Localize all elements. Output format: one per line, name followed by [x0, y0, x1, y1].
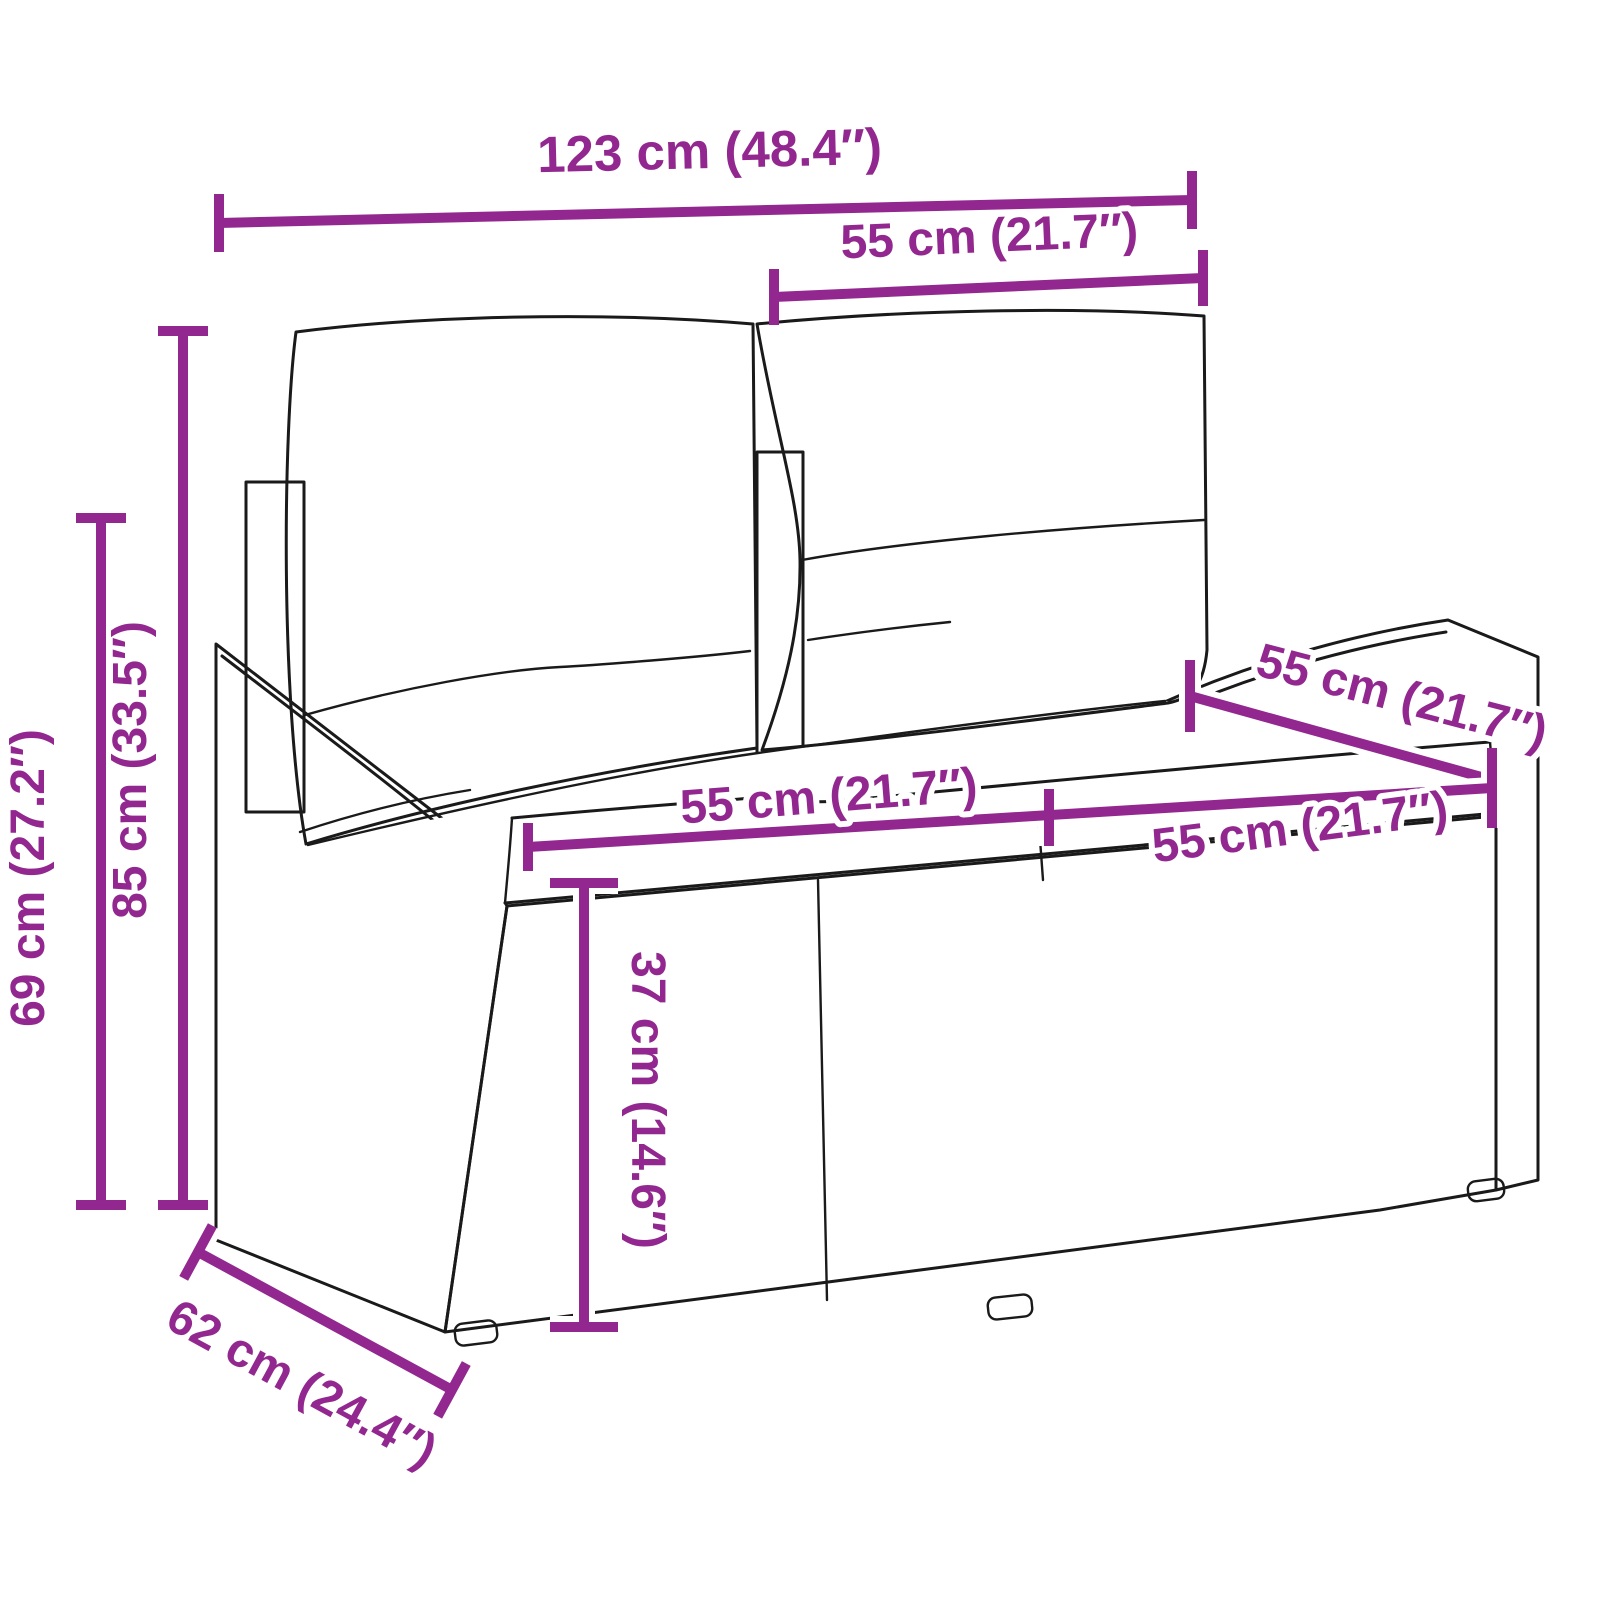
dimension-annotations: 123 cm (48.4″) 55 cm (21.7″) 85 cm (33.5…: [2, 118, 1553, 1478]
back-pillow-right: [757, 310, 1207, 750]
back-post-middle: [757, 452, 803, 762]
dim-overall-height-label: 85 cm (33.5″): [104, 621, 157, 919]
sofa-foot: [454, 1320, 498, 1347]
dim-overall-height: 85 cm (33.5″): [104, 331, 208, 1205]
dim-backrest-width: 55 cm (21.7″): [774, 204, 1203, 325]
left-armrest: [216, 644, 507, 1332]
dimension-diagram: 123 cm (48.4″) 55 cm (21.7″) 85 cm (33.5…: [0, 0, 1600, 1600]
dim-overall-width-label: 123 cm (48.4″): [537, 118, 883, 183]
sofa-illustration: 123 cm (48.4″) 55 cm (21.7″) 85 cm (33.5…: [0, 0, 1600, 1600]
dim-backrest-width-label: 55 cm (21.7″): [839, 204, 1139, 270]
dim-overall-depth: 62 cm (24.4″): [154, 1226, 479, 1479]
dim-seat-height-label: 37 cm (14.6″): [621, 951, 674, 1249]
base-seam: [818, 880, 827, 1300]
dim-seat-height: 37 cm (14.6″): [550, 883, 674, 1327]
sofa-foot: [987, 1294, 1033, 1320]
dim-armrest-height-label: 69 cm (27.2″): [2, 729, 55, 1027]
